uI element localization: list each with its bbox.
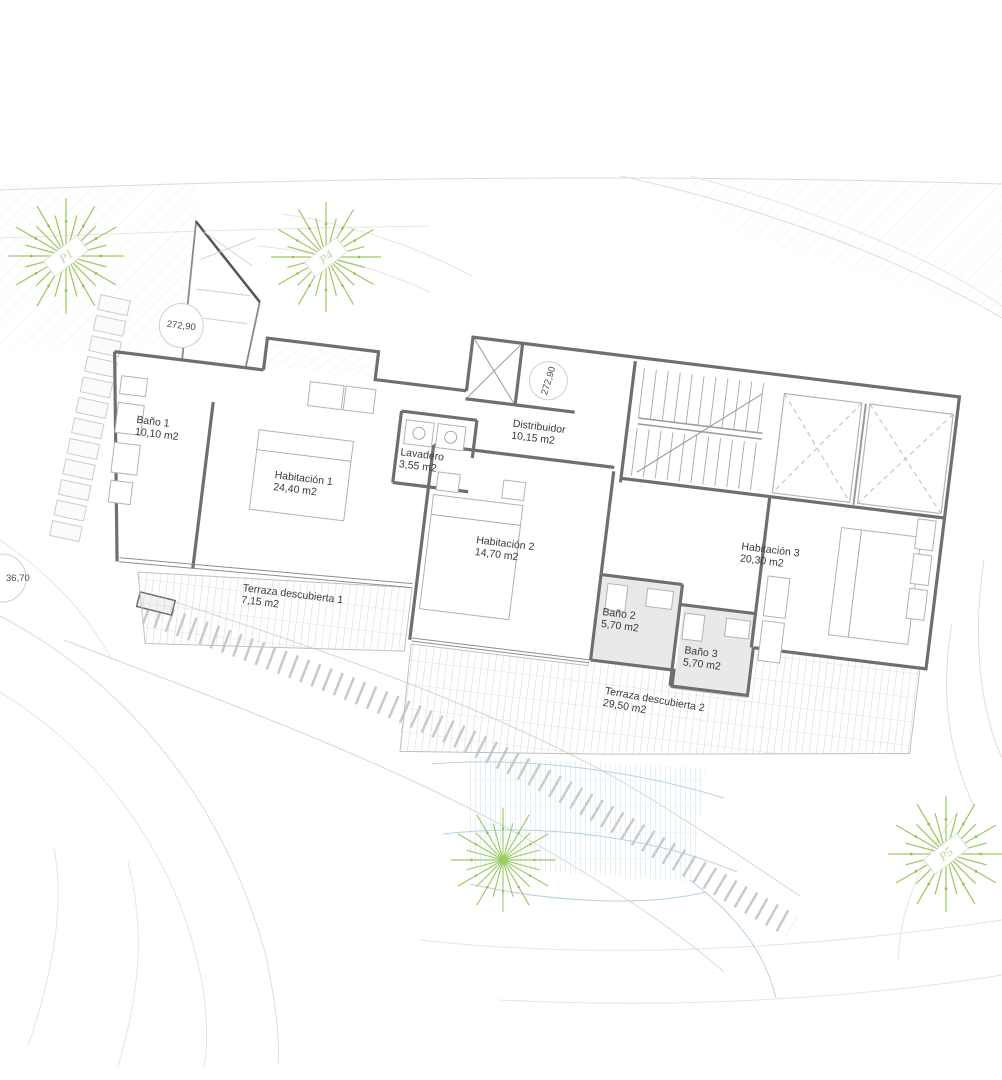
- level-3-value: 36,70: [6, 573, 30, 584]
- room-label-bath-2: Baño 2 5,70 m2: [600, 606, 641, 634]
- bath-1-fixtures: [106, 376, 148, 505]
- level-marker-2: 272,90: [527, 360, 569, 402]
- void-skylights: [772, 394, 953, 514]
- floor-plan-canvas: 272,90: [0, 0, 1002, 1080]
- room-label-bath-1: Baño 1 10,10 m2: [134, 414, 181, 443]
- floor-plan-page: 272,90: [0, 0, 1002, 1080]
- room-area-text: 10,10 m2: [134, 426, 179, 443]
- room-label-hall: Distribuidor 10,15 m2: [511, 418, 567, 448]
- room-label-laundry: Lavadero 3,55 m2: [398, 446, 445, 475]
- room-label-bath-3: Baño 3 5,70 m2: [682, 644, 723, 672]
- building-plan: 272,90: [71, 214, 970, 814]
- bedroom-1-furniture: [249, 376, 376, 523]
- elevator-shaft: [468, 339, 521, 402]
- tree-p4: P4: [271, 202, 381, 312]
- room-label-bedroom-3: Habitación 3 20,30 m2: [739, 541, 800, 572]
- level-marker-3: 36,70: [0, 554, 30, 602]
- tree-p5: P5: [888, 796, 1002, 912]
- main-stair: [631, 368, 768, 490]
- ground-hatch-areas: [0, 178, 1002, 348]
